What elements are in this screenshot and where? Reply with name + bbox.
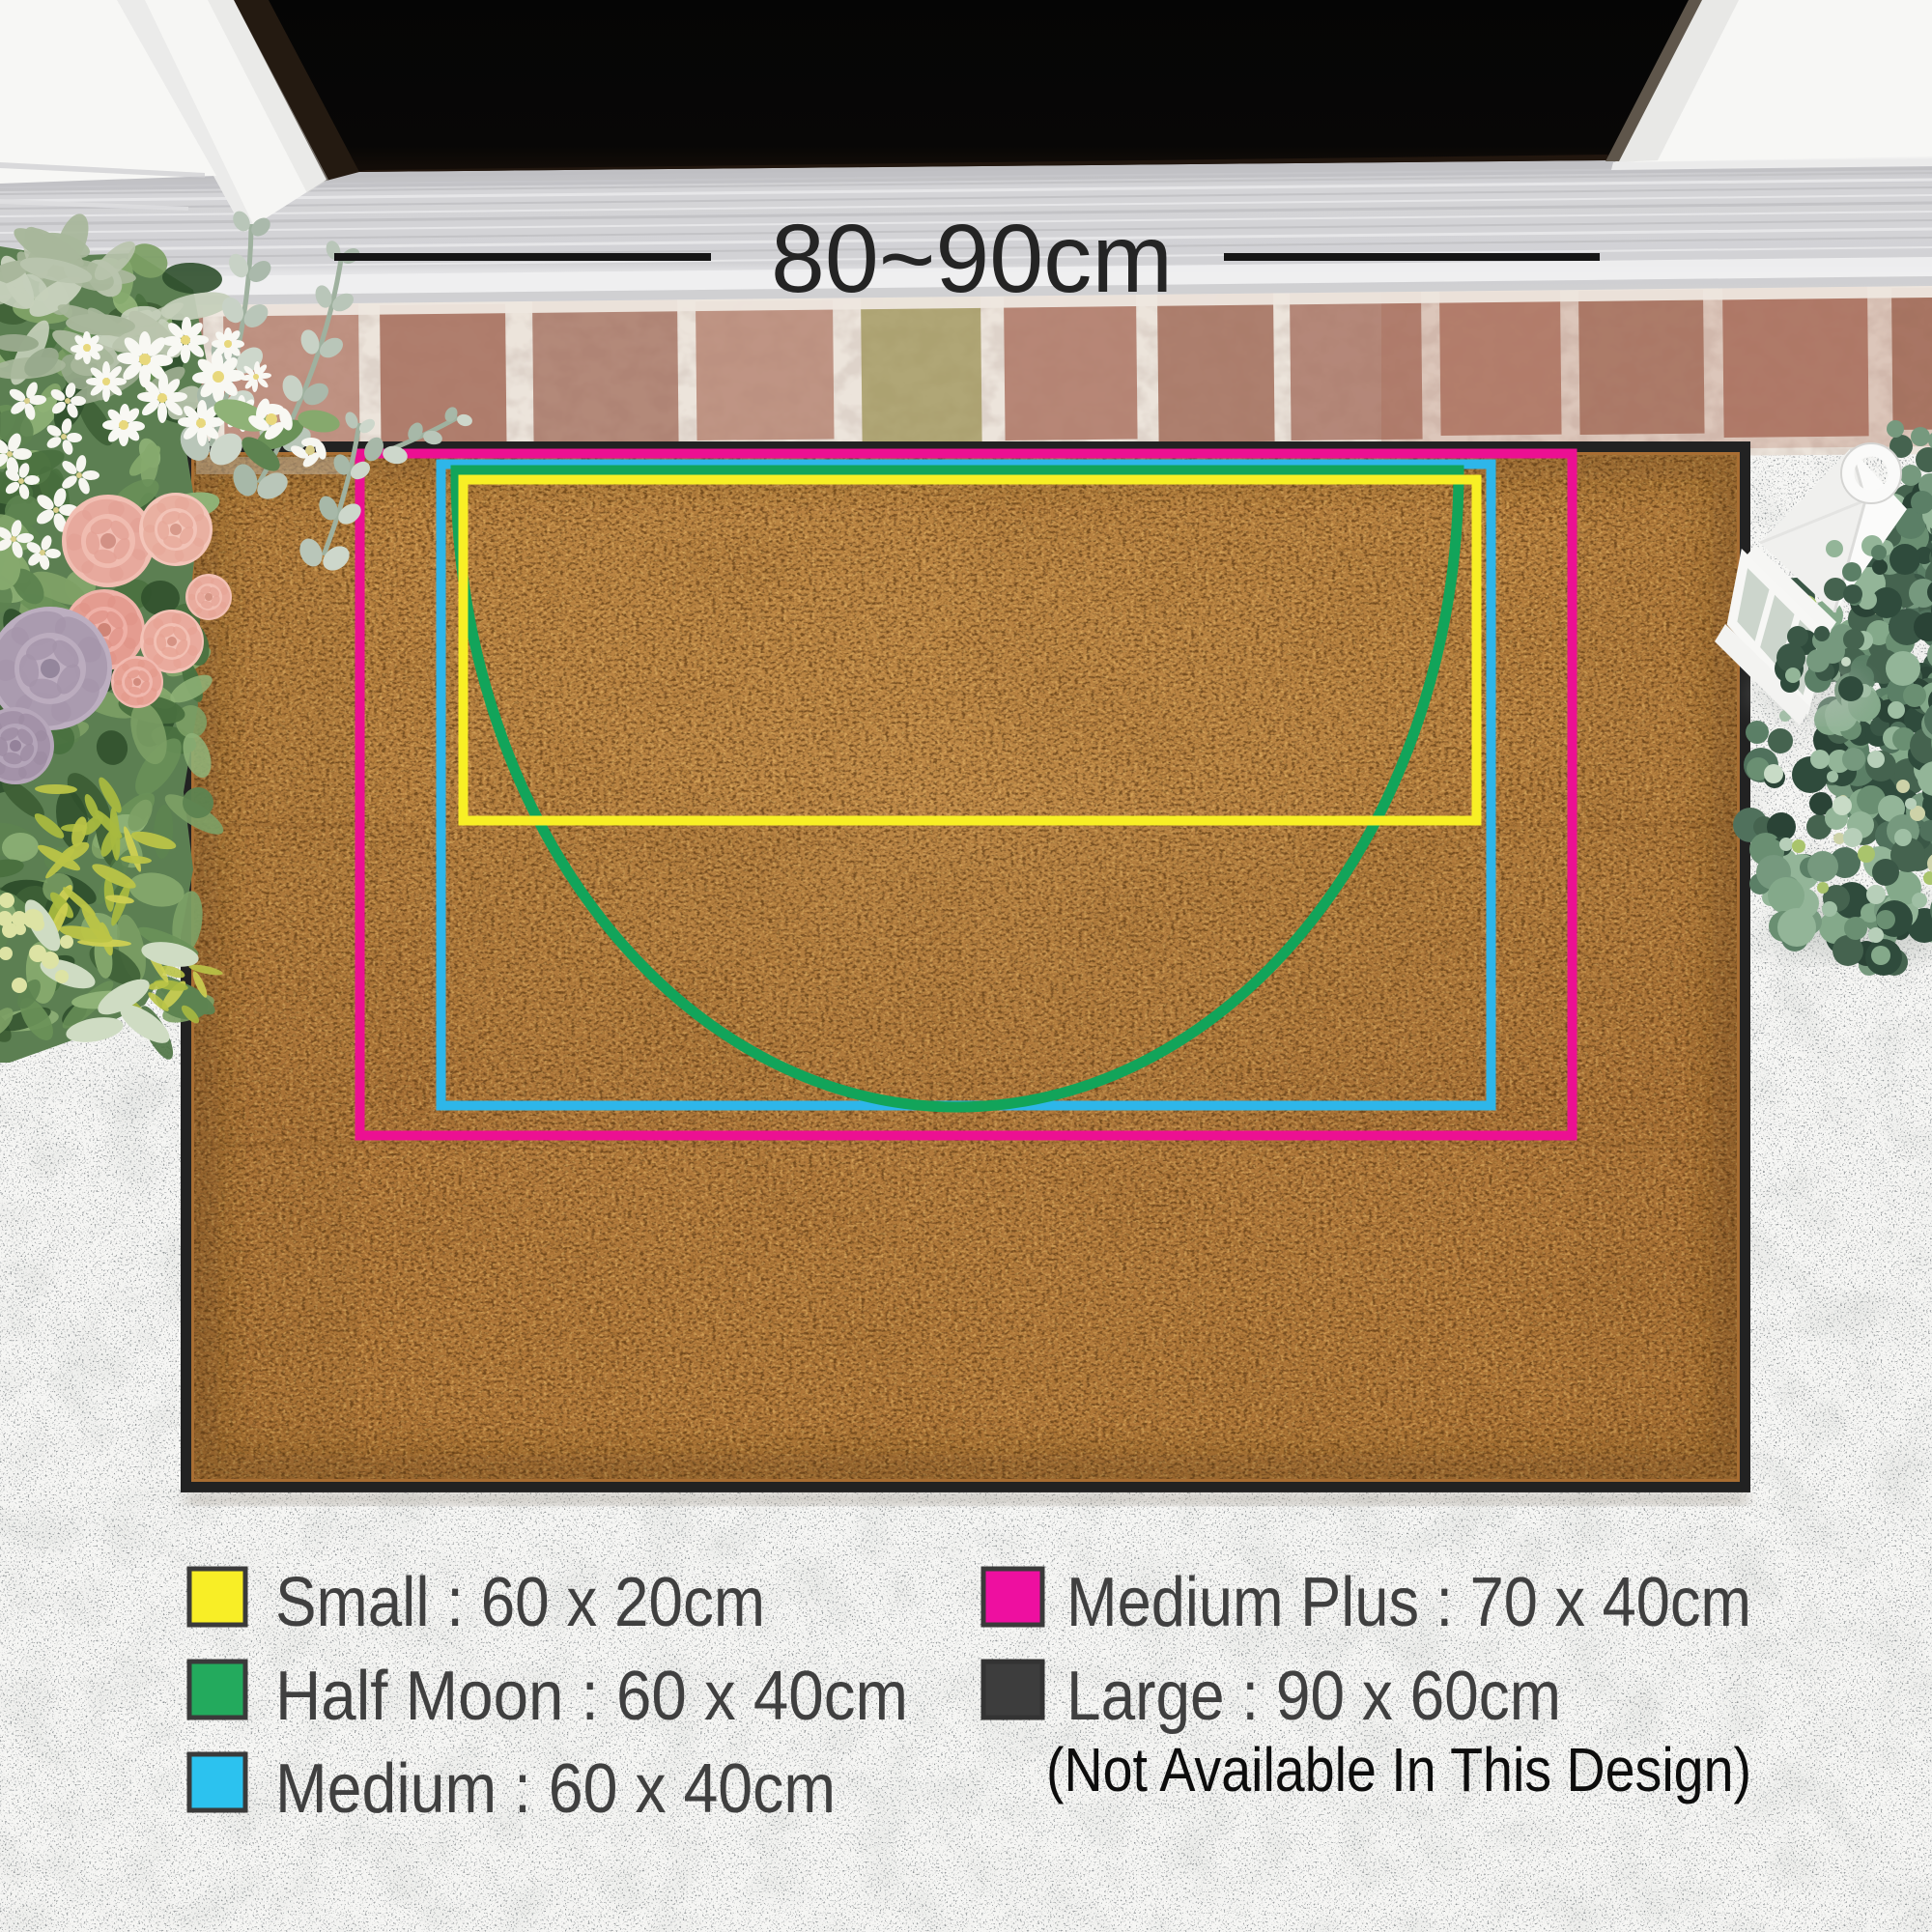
svg-text:Small : 60 x 20cm: Small : 60 x 20cm: [275, 1564, 765, 1641]
svg-text:Half Moon : 60 x 40cm: Half Moon : 60 x 40cm: [275, 1658, 908, 1735]
svg-text:(Not Available In This Design): (Not Available In This Design): [1046, 1735, 1751, 1804]
svg-text:Medium Plus : 70 x 40cm: Medium Plus : 70 x 40cm: [1066, 1564, 1751, 1641]
svg-text:Large : 90 x 60cm: Large : 90 x 60cm: [1066, 1658, 1561, 1735]
svg-text:Medium : 60 x 40cm: Medium : 60 x 40cm: [275, 1750, 836, 1828]
svg-text:80~90cm: 80~90cm: [771, 205, 1173, 313]
